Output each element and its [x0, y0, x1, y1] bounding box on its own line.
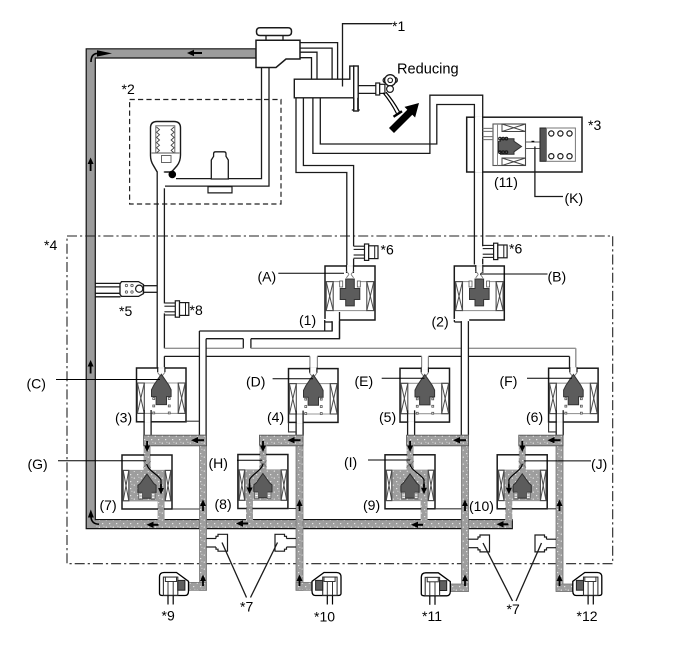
svg-text:*3: *3 [588, 117, 601, 133]
svg-text:*2: *2 [122, 81, 135, 97]
svg-text:*4: *4 [44, 237, 57, 253]
svg-text:Reducing: Reducing [397, 62, 459, 78]
svg-text:*12: *12 [577, 608, 598, 624]
svg-text:*7: *7 [240, 599, 253, 615]
svg-text:(E): (E) [355, 373, 374, 389]
svg-text:*5: *5 [119, 303, 132, 319]
svg-text:*10: *10 [314, 609, 335, 625]
svg-text:(C): (C) [27, 376, 46, 392]
svg-text:*8: *8 [190, 302, 203, 318]
svg-text:(4): (4) [267, 409, 284, 425]
svg-text:(A): (A) [258, 269, 277, 285]
svg-text:(8): (8) [215, 496, 232, 512]
svg-text:(F): (F) [500, 373, 518, 389]
svg-text:(10): (10) [469, 498, 494, 514]
svg-text:(9): (9) [363, 497, 380, 513]
svg-text:*11: *11 [422, 608, 442, 624]
svg-text:(3): (3) [115, 410, 132, 426]
svg-text:(G): (G) [28, 456, 48, 472]
svg-text:(H): (H) [209, 455, 228, 471]
svg-text:*1: *1 [392, 18, 405, 34]
svg-text:(6): (6) [526, 409, 543, 425]
svg-text:(7): (7) [100, 497, 117, 513]
svg-text:(11): (11) [494, 174, 518, 190]
svg-text:*6: *6 [509, 241, 522, 257]
svg-text:(2): (2) [432, 314, 449, 330]
svg-text:(B): (B) [548, 269, 567, 285]
svg-text:(D): (D) [246, 374, 265, 390]
svg-text:(1): (1) [299, 312, 316, 328]
svg-text:(J): (J) [591, 456, 607, 472]
svg-text:(I): (I) [344, 454, 357, 470]
svg-text:*6: *6 [381, 242, 394, 258]
svg-text:*7: *7 [507, 601, 520, 617]
svg-text:*9: *9 [162, 608, 175, 624]
svg-text:(K): (K) [565, 190, 584, 206]
svg-text:(5): (5) [379, 409, 396, 425]
